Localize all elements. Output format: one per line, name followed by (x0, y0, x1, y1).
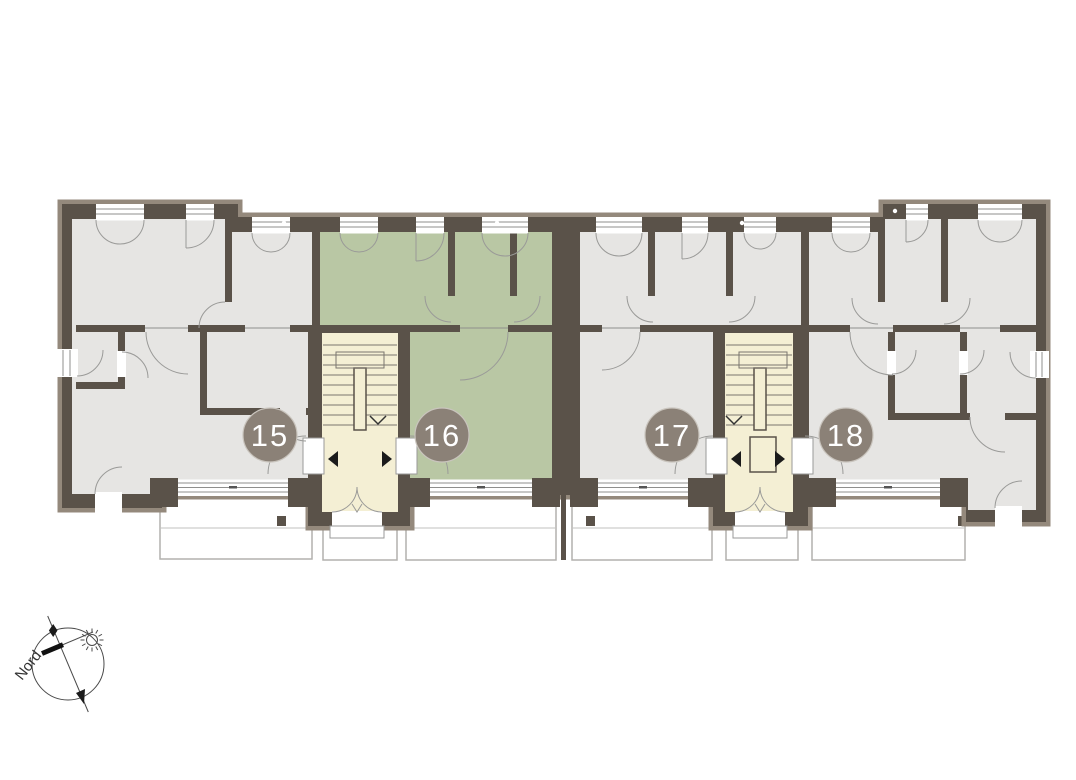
apartment-door (396, 438, 417, 474)
terrace-post (277, 516, 286, 526)
door-opening (887, 351, 896, 375)
unit-16-label: 16 (423, 418, 461, 453)
unit-15-label: 15 (251, 418, 289, 453)
terrace-post (586, 516, 595, 526)
glass-front (598, 480, 688, 497)
unit-16-badge[interactable]: 16 (415, 408, 469, 462)
door-opening (959, 351, 968, 375)
north-compass: Nord (12, 616, 104, 712)
entrance-step (733, 526, 787, 538)
glass-front (178, 480, 288, 497)
unit-18-label: 18 (827, 418, 865, 453)
stair-stringer (754, 368, 766, 430)
unit-18-area[interactable] (809, 219, 1036, 510)
compass-arrow-icon (76, 689, 85, 704)
elevator (750, 437, 776, 472)
door-opening (95, 492, 122, 513)
unit-15-badge[interactable]: 15 (243, 408, 297, 462)
side-window (1030, 351, 1049, 378)
entrance-opening (735, 511, 785, 527)
glass-front (836, 480, 940, 497)
apartment-door (792, 438, 813, 474)
floor-plan-page: 15 16 17 18 Nord (0, 0, 1076, 780)
nord-label: Nord (12, 647, 45, 683)
north-needle (42, 645, 63, 654)
apartment-door (303, 438, 324, 474)
side-window (56, 349, 78, 377)
door-opening (117, 351, 126, 377)
entrance-opening (332, 511, 382, 527)
apartment-door (706, 438, 727, 474)
floor-plan-canvas: 15 16 17 18 Nord (0, 0, 1076, 780)
unit-18-badge[interactable]: 18 (819, 408, 873, 462)
entrance-step (330, 526, 384, 538)
unit-17-badge[interactable]: 17 (645, 408, 699, 462)
stair-stringer (354, 368, 366, 430)
door-opening (995, 506, 1022, 527)
unit-17-label: 17 (653, 418, 691, 453)
glass-front (430, 480, 532, 497)
